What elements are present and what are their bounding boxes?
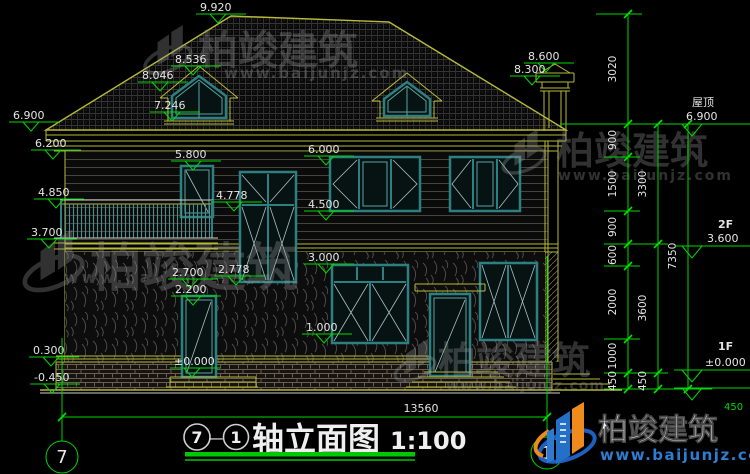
level-stair-sill: 2.778 <box>218 263 250 276</box>
f1-name: 1F <box>718 340 733 353</box>
dim-1000: 1000 <box>607 343 619 370</box>
level-balcony: 3.700 <box>31 226 63 239</box>
level-rail-top: 4.850 <box>38 186 70 199</box>
level-wall-top: 6.200 <box>35 137 67 150</box>
elevation-drawing: 柏竣建筑 www.baijunjz.com 柏竣建筑 www.baijunjz.… <box>0 0 750 474</box>
window-1f-center <box>332 265 408 343</box>
f1-level: ±0.000 <box>705 356 746 369</box>
f2-level: 3.600 <box>707 232 739 245</box>
level-dormer-sill: 7.246 <box>154 99 186 112</box>
window-2f-right <box>450 157 520 211</box>
eave-cornice <box>46 130 566 151</box>
logo-brand-text: 柏竣建筑 <box>598 413 718 448</box>
dim-3300: 3300 <box>637 171 649 198</box>
level-peak: 9.920 <box>200 1 232 14</box>
window-2f-center <box>330 157 420 211</box>
watermark-brand: 柏竣建筑 <box>438 339 590 383</box>
level-dormer-eave: 8.046 <box>142 69 174 82</box>
title-separator: — <box>209 429 224 447</box>
chain-inner-labels: 3020 900 1500 900 600 2000 1000 450 <box>607 56 619 391</box>
level-plinth-top: 0.300 <box>33 344 65 357</box>
dim-3600: 3600 <box>637 295 649 322</box>
level-lintel: 2.700 <box>172 266 204 279</box>
axis-bubble-left: 7 <box>46 441 78 473</box>
title-scale: 1:100 <box>390 427 466 455</box>
dim-600: 600 <box>607 245 619 265</box>
cad-canvas: 柏竣建筑 www.baijunjz.com 柏竣建筑 www.baijunjz.… <box>0 0 750 474</box>
drawing-title: 7 — 1 轴立面图 1:100 <box>184 420 466 460</box>
axis-left-number: 7 <box>56 447 67 468</box>
watermark-left: 柏竣建筑 www.baijunjz.com <box>20 229 298 299</box>
watermark-url: www.baijunjz.com <box>224 64 409 82</box>
level-win2-sill: 4.500 <box>308 198 340 211</box>
level-door-head: 2.200 <box>175 283 207 296</box>
watermark-brand: 柏竣建筑 <box>556 129 708 173</box>
level-chimney-top: 8.600 <box>528 50 560 63</box>
level-win2-head: 6.000 <box>308 143 340 156</box>
dimension-chains: 3020 900 1500 900 600 2000 1000 450 3300… <box>560 10 712 393</box>
dim-450a: 450 <box>607 371 619 391</box>
level-dormer-ridge: 8.536 <box>175 53 207 66</box>
level-eave: 6.900 <box>13 109 45 122</box>
level-chimney-cap: 8.300 <box>514 63 546 76</box>
roof-name: 屋顶 <box>692 96 714 109</box>
dim-450b: 450 <box>637 371 649 391</box>
window-1f-right <box>480 263 537 340</box>
f2-name: 2F <box>718 218 733 231</box>
level-win1-sill: 1.000 <box>306 321 338 334</box>
total-width-dim: 13560 <box>404 402 439 415</box>
roof-level: 6.900 <box>686 110 718 123</box>
brand-logo: 柏竣建筑 www.baijunjz.com <box>535 402 750 468</box>
level-stair-mid: 4.778 <box>216 189 248 202</box>
watermark-url: www.baijunjz.com <box>446 378 605 394</box>
dim-900a: 900 <box>607 130 619 150</box>
dim-900b: 900 <box>607 217 619 237</box>
title-axis-to: 1 <box>230 428 241 447</box>
dim-1500: 1500 <box>607 171 619 198</box>
chain-mid-labels: 3300 3600 450 <box>637 171 649 391</box>
level-floor1: ±0.000 <box>174 355 215 368</box>
dim-2000: 2000 <box>607 289 619 316</box>
dim-3020: 3020 <box>607 56 619 83</box>
title-axis-from: 7 <box>191 428 202 447</box>
site-offset: 450 <box>724 402 743 413</box>
dim-7350: 7350 <box>667 243 679 270</box>
title-underline-thick <box>185 452 415 457</box>
level-band: 3.000 <box>308 251 340 264</box>
logo-url-text: www.baijunjz.com <box>600 446 750 464</box>
level-stair-head: 5.800 <box>175 148 207 161</box>
level-site: -0.450 <box>34 371 69 384</box>
